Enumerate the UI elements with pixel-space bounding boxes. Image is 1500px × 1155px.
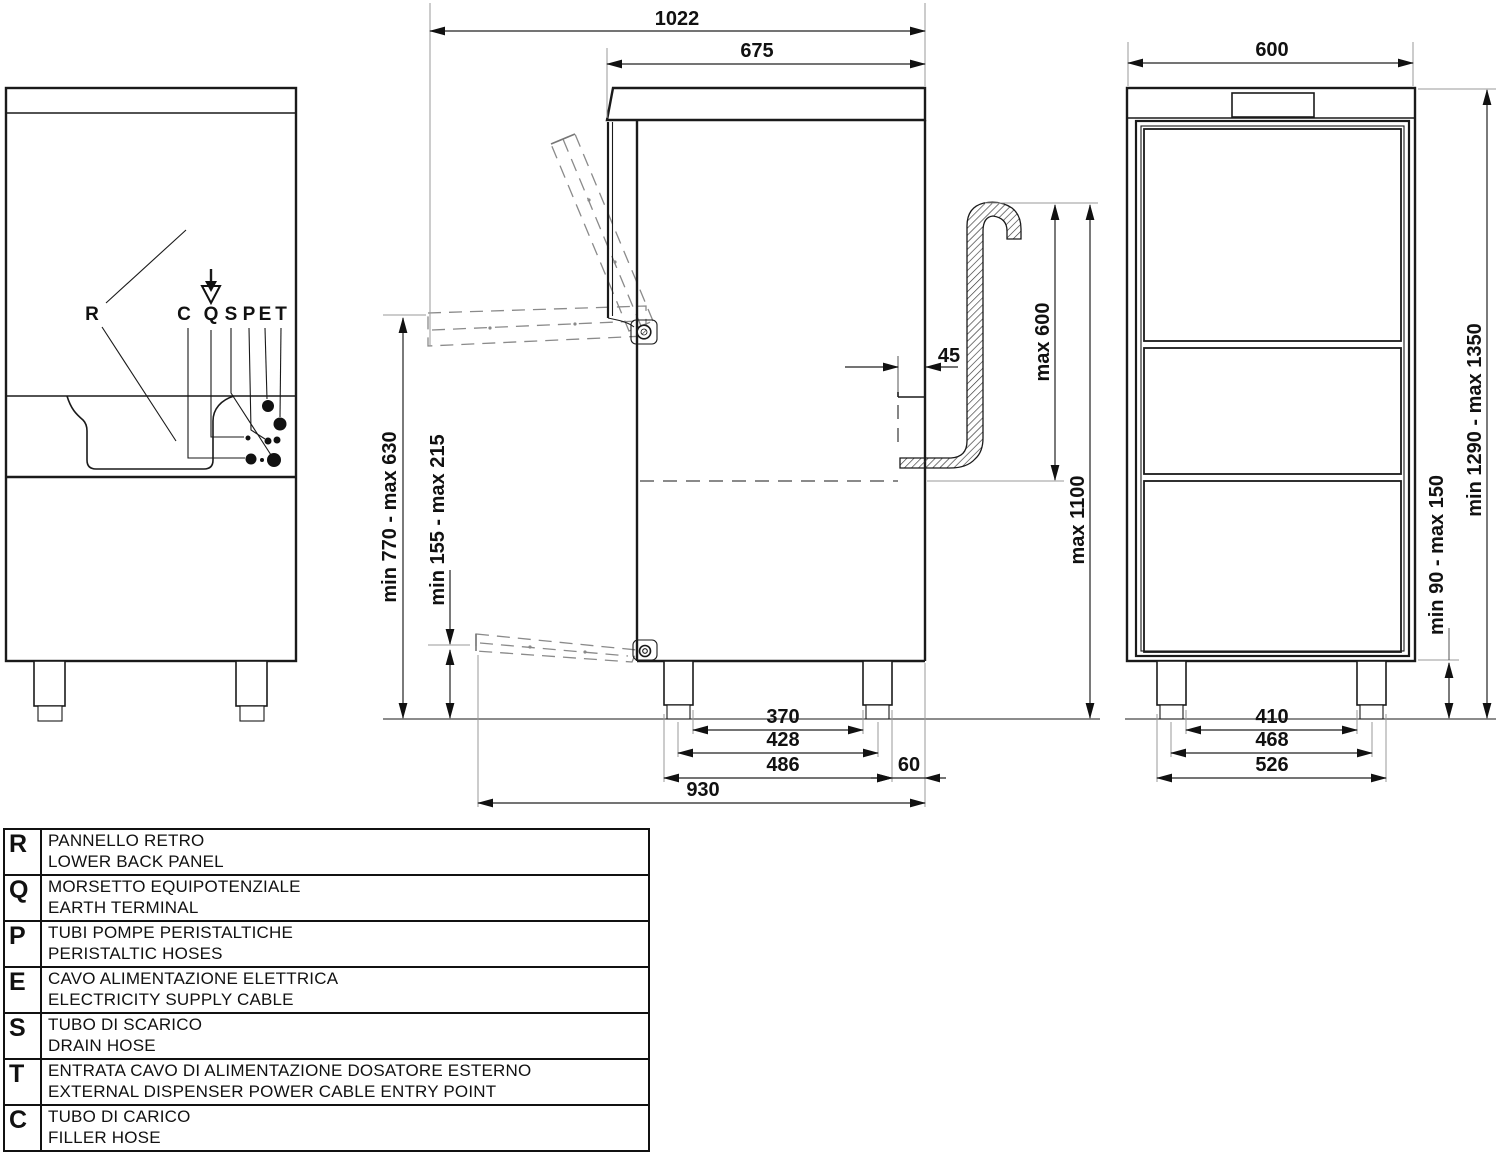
rear-view-drawing: R C Q S P E T [6, 88, 296, 721]
legend-row: C TUBO DI CARICOFILLER HOSE [5, 1106, 648, 1150]
dim-side-back-offset: 60 [898, 754, 920, 776]
legend-letter: Q [5, 876, 42, 920]
side-door [608, 122, 634, 327]
legend-row: S TUBO DI SCARICODRAIN HOSE [5, 1014, 648, 1060]
label-dispenser-entry: T [275, 304, 287, 325]
legend-text-en: DRAIN HOSE [48, 1036, 202, 1057]
legend-text-en: PERISTALTIC HOSES [48, 944, 293, 965]
door-open-positions [428, 134, 653, 662]
legend-text-en: FILLER HOSE [48, 1128, 191, 1149]
dim-body-depth: 675 [740, 40, 773, 62]
label-earth-terminal: Q [204, 304, 219, 325]
legend-text-it: TUBI POMPE PERISTALTICHE [48, 923, 293, 944]
dim-side-feet-inner: 370 [766, 706, 799, 728]
dim-overall-depth: 1022 [655, 8, 700, 30]
legend-text-it: TUBO DI CARICO [48, 1107, 191, 1128]
legend-row: E CAVO ALIMENTAZIONE ELETTRICAELECTRICIT… [5, 968, 648, 1014]
dim-front-feet-inner: 410 [1255, 706, 1288, 728]
technical-drawing-page: R C Q S P E T [0, 0, 1500, 1155]
label-drain-hose: S [225, 304, 238, 325]
dim-door-open-height: min 770 - max 630 [379, 431, 401, 602]
legend-letter: C [5, 1106, 42, 1150]
legend-text-it: CAVO ALIMENTAZIONE ELETTRICA [48, 969, 338, 990]
label-peristaltic-hoses: P [243, 304, 256, 325]
label-supply-cable: E [259, 304, 272, 325]
dim-side-feet-outer: 486 [766, 754, 799, 776]
legend-letter: T [5, 1060, 42, 1104]
dim-overall-height: min 1290 - max 1350 [1464, 323, 1486, 516]
rear-feet [34, 661, 267, 721]
legend-text-it: TUBO DI SCARICO [48, 1015, 202, 1036]
tank-outline [640, 356, 925, 481]
legend-text-en: LOWER BACK PANEL [48, 852, 224, 873]
dim-drain-offset: 45 [938, 345, 960, 367]
legend-letter: E [5, 968, 42, 1012]
legend-text-en: EARTH TERMINAL [48, 898, 301, 919]
drain-standpipe [900, 202, 1021, 468]
label-lower-back-panel: R [85, 304, 99, 325]
legend-table: R PANNELLO RETROLOWER BACK PANEL Q MORSE… [3, 828, 650, 1152]
dim-side-feet-centers: 428 [766, 729, 799, 751]
dim-front-feet-centers: 468 [1255, 729, 1288, 751]
legend-row: T ENTRATA CAVO DI ALIMENTAZIONE DOSATORE… [5, 1060, 648, 1106]
control-panel-display [1232, 93, 1314, 117]
dim-feet-height: min 90 - max 150 [1426, 475, 1448, 635]
dim-front-feet-outer: 526 [1255, 754, 1288, 776]
legend-row: R PANNELLO RETROLOWER BACK PANEL [5, 830, 648, 876]
legend-text-en: ELECTRICITY SUPPLY CABLE [48, 990, 338, 1011]
legend-row: Q MORSETTO EQUIPOTENZIALEEARTH TERMINAL [5, 876, 648, 922]
front-view-drawing [1127, 88, 1415, 719]
legend-text-it: MORSETTO EQUIPOTENZIALE [48, 877, 301, 898]
label-filler-hose: C [177, 304, 191, 325]
legend-row: P TUBI POMPE PERISTALTICHEPERISTALTIC HO… [5, 922, 648, 968]
side-view-drawing [428, 88, 1021, 719]
dim-front-width: 600 [1255, 39, 1288, 61]
legend-text-it: PANNELLO RETRO [48, 831, 224, 852]
dim-side-total-depth: 930 [686, 779, 719, 801]
dim-standpipe-max-height: max 600 [1032, 303, 1054, 382]
door-hinge-icon [631, 320, 657, 344]
legend-letter: S [5, 1014, 42, 1058]
legend-letter: P [5, 922, 42, 966]
dim-lower-panel-height: min 155 - max 215 [427, 434, 449, 605]
dim-drain-max-height: max 1100 [1067, 476, 1089, 565]
legend-text-en: EXTERNAL DISPENSER POWER CABLE ENTRY POI… [48, 1082, 531, 1103]
legend-letter: R [5, 830, 42, 874]
legend-text-it: ENTRATA CAVO DI ALIMENTAZIONE DOSATORE E… [48, 1061, 531, 1082]
